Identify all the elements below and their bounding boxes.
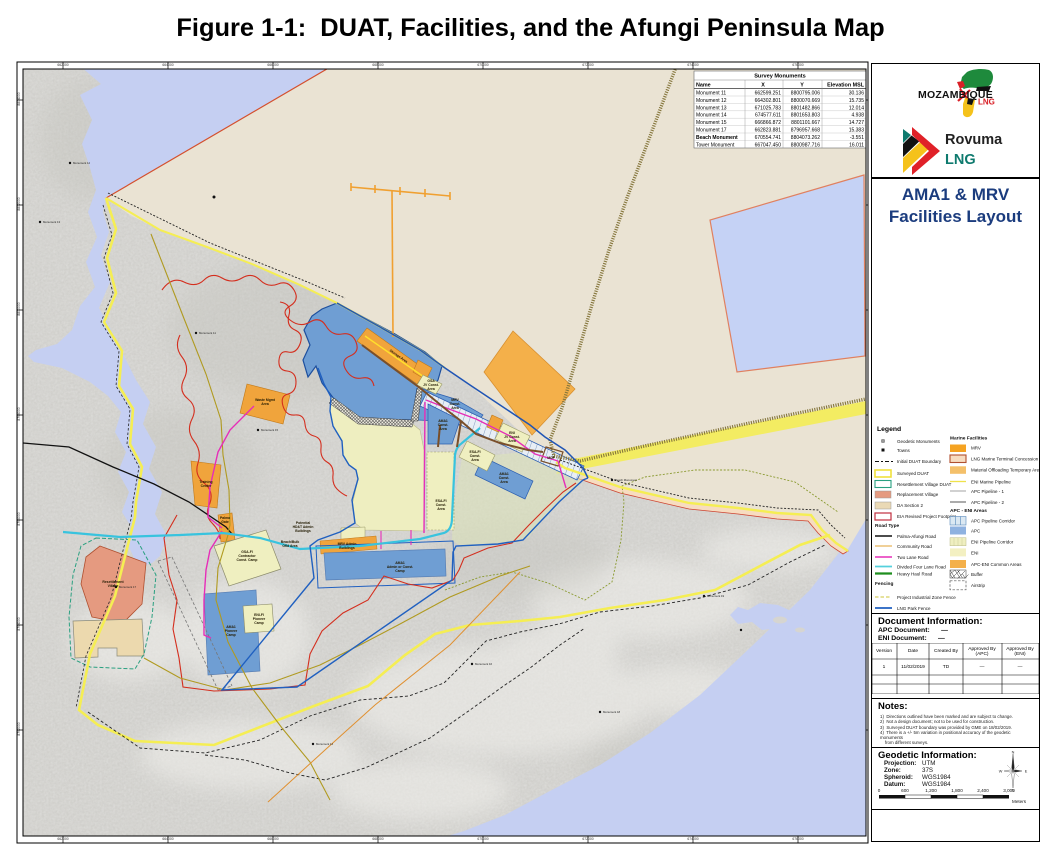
svg-text:Resettlement Village DUAT: Resettlement Village DUAT (897, 482, 952, 487)
svg-text:Village: Village (108, 584, 119, 588)
svg-text:(ENI): (ENI) (1014, 651, 1026, 657)
svg-text:8804073.262: 8804073.262 (791, 135, 820, 141)
svg-text:Area: Area (471, 458, 479, 462)
svg-text:Area: Area (439, 427, 447, 431)
svg-text:X: X (761, 83, 765, 89)
svg-text:672000: 672000 (582, 63, 593, 67)
svg-text:8792000: 8792000 (17, 722, 21, 735)
svg-text:Community Road: Community Road (897, 544, 932, 549)
svg-text:Monument 14: Monument 14 (316, 742, 334, 746)
svg-text:Created By: Created By (934, 648, 959, 654)
svg-text:Meters: Meters (1012, 799, 1027, 804)
svg-text:Monument 14: Monument 14 (696, 113, 727, 119)
svg-text:Marine Facilities: Marine Facilities (950, 436, 988, 442)
svg-text:APC - ENI Areas: APC - ENI Areas (950, 508, 987, 514)
svg-text:Const. Camp: Const. Camp (237, 558, 258, 562)
svg-text:676000: 676000 (792, 837, 803, 841)
svg-text:664000: 664000 (162, 837, 173, 841)
svg-text:8800000: 8800000 (17, 302, 21, 315)
svg-text:Camp: Camp (226, 633, 235, 637)
svg-text:Buffer: Buffer (971, 572, 983, 577)
svg-text:Towns: Towns (897, 448, 911, 453)
svg-text:664302.801: 664302.801 (755, 98, 782, 104)
svg-text:Monument 18: Monument 18 (603, 710, 621, 714)
svg-text:Rovuma: Rovuma (945, 132, 1003, 148)
svg-text:Monument 17: Monument 17 (696, 128, 727, 134)
svg-text:672000: 672000 (582, 837, 593, 841)
svg-text:Project Industrial Zone Fence: Project Industrial Zone Fence (897, 595, 956, 600)
svg-text:DA Section 2: DA Section 2 (897, 503, 924, 508)
svg-text:8800795.006: 8800795.006 (791, 91, 820, 97)
svg-text:APC: APC (971, 529, 981, 534)
svg-text:668000: 668000 (372, 837, 383, 841)
svg-text:Name: Name (696, 83, 711, 89)
svg-text:Monument 13: Monument 13 (696, 105, 727, 111)
svg-text:8800987.716: 8800987.716 (791, 142, 820, 148)
svg-text:LNG Park Fence: LNG Park Fence (897, 606, 931, 611)
svg-text:8800070.669: 8800070.669 (791, 98, 820, 104)
svg-text:Road Type: Road Type (875, 523, 899, 529)
svg-text:Area: Area (500, 480, 508, 484)
svg-text:Palma-Afungi Road: Palma-Afungi Road (897, 534, 937, 539)
svg-text:8801101.667: 8801101.667 (791, 120, 820, 126)
svg-text:Buildings: Buildings (339, 546, 355, 550)
svg-text:674577.611: 674577.611 (755, 113, 781, 119)
svg-text:Two Lane Road: Two Lane Road (897, 555, 929, 560)
svg-text:Date: Date (908, 648, 918, 654)
svg-text:Elevation MSL: Elevation MSL (827, 83, 865, 89)
svg-text:APC-ENI Common Areas: APC-ENI Common Areas (971, 562, 1022, 567)
svg-text:1: 1 (883, 664, 886, 670)
svg-text:E: E (1025, 770, 1028, 774)
svg-text:Y: Y (800, 83, 804, 89)
svg-text:671025.783: 671025.783 (755, 105, 782, 111)
svg-text:Surveyed DUAT: Surveyed DUAT (897, 471, 929, 476)
svg-text:15.735: 15.735 (849, 98, 865, 104)
svg-text:Area: Area (261, 402, 269, 406)
svg-text:Airstrip: Airstrip (971, 583, 985, 588)
svg-text:1,200: 1,200 (925, 788, 937, 793)
svg-text:8801482.866: 8801482.866 (791, 105, 820, 111)
svg-text:Monument 15: Monument 15 (261, 428, 279, 432)
svg-text:8802000: 8802000 (17, 197, 21, 210)
svg-text:8796957.668: 8796957.668 (791, 128, 820, 134)
svg-text:Fencing: Fencing (875, 581, 893, 587)
svg-text:APC Pipeline Corridor: APC Pipeline Corridor (971, 519, 1016, 524)
svg-text:670554.741: 670554.741 (755, 135, 782, 141)
svg-text:8804000: 8804000 (17, 92, 21, 105)
svg-text:MOF: MOF (547, 456, 555, 460)
svg-text:Beach Monument: Beach Monument (615, 478, 637, 482)
svg-text:Monument 16: Monument 16 (475, 662, 493, 666)
svg-text:662000: 662000 (57, 63, 68, 67)
svg-text:LNG Marine Terminal Concession: LNG Marine Terminal Concession Area (971, 457, 1039, 462)
svg-text:Monument 11: Monument 11 (696, 91, 726, 97)
svg-text:670000: 670000 (477, 837, 488, 841)
svg-text:674000: 674000 (687, 837, 698, 841)
svg-text:15.383: 15.383 (849, 128, 865, 134)
svg-text:Buildings: Buildings (295, 529, 311, 533)
svg-text:(APC): (APC) (975, 651, 988, 657)
svg-text:ENI: ENI (971, 551, 979, 556)
svg-text:Legend: Legend (877, 426, 901, 433)
svg-text:16.011: 16.011 (849, 142, 864, 148)
svg-text:667047.450: 667047.450 (755, 142, 782, 148)
svg-text:Monument 17: Monument 17 (119, 585, 137, 589)
svg-text:Area: Area (437, 507, 445, 511)
svg-text:8796000: 8796000 (17, 512, 21, 525)
svg-text:Material Offloading Temporary: Material Offloading Temporary Area (971, 468, 1039, 473)
svg-text:666000: 666000 (267, 837, 278, 841)
svg-text:Area: Area (451, 406, 459, 410)
svg-text:Monument 12: Monument 12 (73, 161, 91, 165)
svg-text:Monument 13: Monument 13 (43, 220, 61, 224)
svg-text:W: W (999, 770, 1003, 774)
svg-text:676000: 676000 (792, 63, 803, 67)
svg-text:Heavy Haul Road: Heavy Haul Road (897, 572, 933, 577)
svg-text:670000: 670000 (477, 63, 488, 67)
svg-text:Beach Monument: Beach Monument (696, 135, 738, 141)
svg-text:ENI Marine Pipeline: ENI Marine Pipeline (971, 480, 1011, 485)
svg-text:666866.872: 666866.872 (755, 120, 782, 126)
svg-text:N: N (1012, 751, 1015, 755)
svg-text:Version: Version (876, 648, 892, 654)
svg-text:APC Pipeline - 2: APC Pipeline - 2 (971, 500, 1005, 505)
svg-text:Replacement Village: Replacement Village (897, 492, 939, 497)
svg-text:666000: 666000 (267, 63, 278, 67)
svg-text:30.136: 30.136 (849, 91, 865, 97)
svg-text:Monument 11: Monument 11 (199, 331, 216, 335)
svg-text:—: — (980, 665, 985, 670)
svg-text:Initial DUAT Boundary: Initial DUAT Boundary (897, 459, 942, 464)
svg-text:3,000: 3,000 (1003, 788, 1015, 793)
svg-text:4.938: 4.938 (851, 113, 864, 119)
svg-text:Tower Monument: Tower Monument (696, 142, 735, 148)
svg-text:8798000: 8798000 (17, 407, 21, 420)
svg-text:—: — (1018, 665, 1023, 670)
svg-text:8801653.803: 8801653.803 (791, 113, 820, 119)
svg-text:Divided Four Lane Road: Divided Four Lane Road (897, 565, 946, 570)
svg-text:14.727: 14.727 (849, 120, 865, 126)
svg-text:Ofld Area: Ofld Area (282, 544, 297, 548)
svg-text:Monument 12: Monument 12 (696, 98, 727, 104)
svg-text:662599.251: 662599.251 (755, 91, 782, 97)
svg-text:662823.881: 662823.881 (755, 128, 782, 134)
svg-text:662000: 662000 (57, 837, 68, 841)
svg-text:EIA Revised Project Footprint: EIA Revised Project Footprint (897, 514, 957, 519)
svg-text:Geodetic Monuments: Geodetic Monuments (897, 439, 941, 444)
svg-text:1,800: 1,800 (951, 788, 963, 793)
svg-text:Monument 15: Monument 15 (696, 120, 727, 126)
svg-text:MRV: MRV (971, 446, 981, 451)
svg-text:LNG: LNG (945, 152, 976, 168)
svg-text:Center: Center (201, 484, 212, 488)
svg-text:2,400: 2,400 (977, 788, 989, 793)
svg-text:Area: Area (427, 387, 435, 391)
svg-text:600: 600 (901, 788, 909, 793)
svg-text:11/02/2019: 11/02/2019 (901, 664, 925, 670)
svg-text:APC Pipeline - 1: APC Pipeline - 1 (971, 489, 1005, 494)
svg-text:668000: 668000 (372, 63, 383, 67)
svg-text:Monument 19: Monument 19 (707, 594, 725, 598)
svg-text:ENI Pipeline Corridor: ENI Pipeline Corridor (971, 540, 1014, 545)
svg-text:0: 0 (878, 788, 881, 793)
svg-text:Camp: Camp (395, 569, 404, 573)
svg-text:12.014: 12.014 (849, 105, 865, 111)
svg-text:Gate: Gate (221, 520, 229, 524)
svg-text:8794000: 8794000 (17, 617, 21, 630)
svg-text:674000: 674000 (687, 63, 698, 67)
svg-text:Area: Area (508, 439, 516, 443)
svg-text:TD: TD (943, 664, 950, 670)
svg-text:LNG: LNG (978, 98, 995, 107)
svg-text:664000: 664000 (162, 63, 173, 67)
svg-text:-3.551: -3.551 (850, 135, 864, 141)
svg-text:Camp: Camp (254, 621, 263, 625)
svg-text:Survey Monuments: Survey Monuments (754, 74, 806, 80)
